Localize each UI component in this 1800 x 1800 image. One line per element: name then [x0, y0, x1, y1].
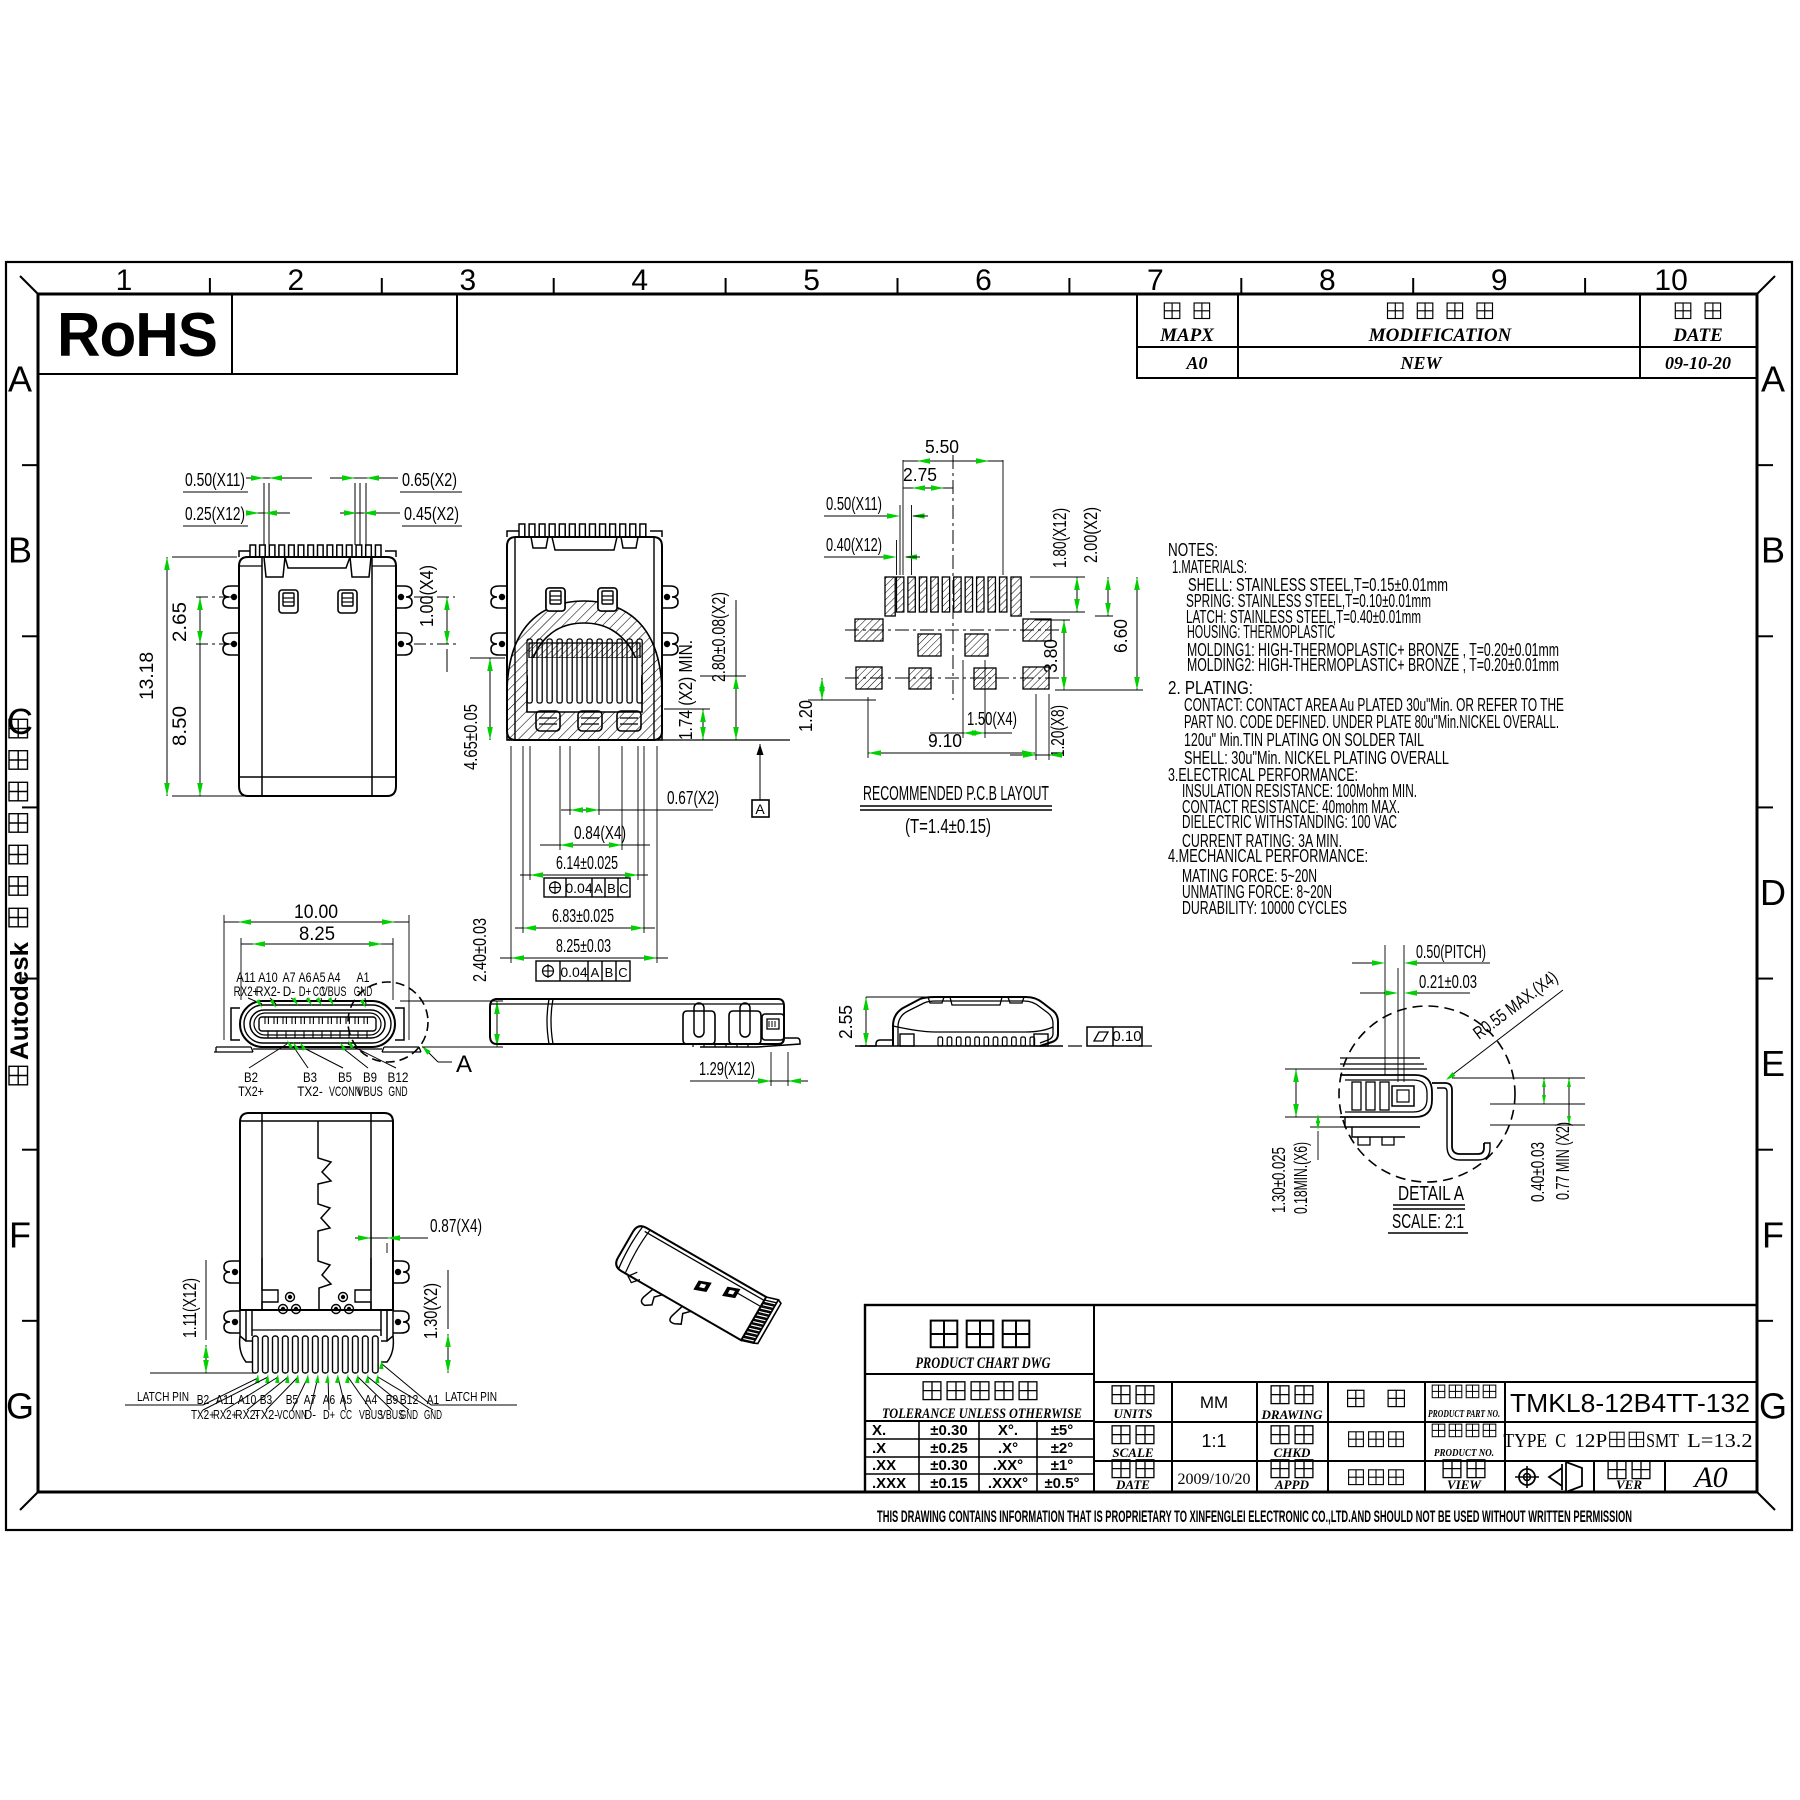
svg-text:DRAWING: DRAWING [1261, 1407, 1324, 1422]
svg-text:A11: A11 [216, 1392, 235, 1407]
svg-text:HOUSING: THERMOPLASTIC: HOUSING: THERMOPLASTIC [1187, 622, 1335, 642]
svg-text:B5: B5 [286, 1392, 298, 1407]
svg-text:1.20(X8): 1.20(X8) [1048, 705, 1068, 757]
svg-text:Autodesk: Autodesk [6, 942, 34, 1060]
svg-text:1.00(X4): 1.00(X4) [417, 565, 437, 627]
svg-text:8: 8 [1319, 264, 1336, 297]
svg-text:6.60: 6.60 [1111, 619, 1131, 653]
svg-text:8.25: 8.25 [299, 924, 335, 945]
svg-text:0.04: 0.04 [560, 964, 587, 980]
svg-text:LATCH PIN: LATCH PIN [137, 1389, 189, 1404]
svg-text:G: G [6, 1385, 34, 1426]
svg-text:2.80±0.08(X2): 2.80±0.08(X2) [709, 592, 729, 682]
svg-text:1.MATERIALS:: 1.MATERIALS: [1172, 557, 1247, 577]
svg-text:4.MECHANICAL PERFORMANCE:: 4.MECHANICAL PERFORMANCE: [1168, 846, 1368, 866]
svg-text:7: 7 [1147, 264, 1164, 297]
svg-text:DIELECTRIC WITHSTANDING: 100: DIELECTRIC WITHSTANDING: 100 VAC [1182, 812, 1397, 832]
svg-text:0.50(PITCH): 0.50(PITCH) [1416, 942, 1486, 962]
svg-text:1.30(X2): 1.30(X2) [421, 1283, 441, 1339]
svg-text:L=13.2: L=13.2 [1687, 1431, 1753, 1452]
svg-text:0.04: 0.04 [565, 880, 592, 896]
svg-text:NEW: NEW [1399, 353, 1443, 373]
svg-text:.X°: .X° [998, 1440, 1018, 1457]
svg-text:±0.25: ±0.25 [930, 1440, 967, 1457]
svg-text:B: B [8, 530, 32, 571]
svg-text:2009/10/20: 2009/10/20 [1178, 1471, 1251, 1488]
svg-text:0.50(X11): 0.50(X11) [826, 494, 882, 514]
svg-text:1.74 (X2) MIN.: 1.74 (X2) MIN. [676, 640, 696, 740]
svg-text:0.65(X2): 0.65(X2) [402, 470, 457, 490]
svg-text:±0.5°: ±0.5° [1044, 1475, 1079, 1492]
svg-text:A: A [8, 359, 32, 400]
svg-text:3.80: 3.80 [1041, 639, 1061, 673]
svg-text:1.20: 1.20 [796, 700, 816, 732]
svg-text:TYPE: TYPE [1503, 1431, 1547, 1452]
svg-text:TX2-: TX2- [254, 1407, 278, 1422]
svg-text:1.50(X4): 1.50(X4) [967, 709, 1017, 729]
svg-text:0.50(X11): 0.50(X11) [185, 470, 245, 490]
svg-text:A0: A0 [1692, 1461, 1727, 1494]
svg-text:2.40±0.03: 2.40±0.03 [470, 918, 490, 982]
svg-text:MOLDING2: HIGH-THERMOPLASTIC+: MOLDING2: HIGH-THERMOPLASTIC+ BRONZE , T… [1187, 655, 1559, 675]
svg-text:GND: GND [424, 1407, 442, 1422]
svg-text:APPD: APPD [1274, 1477, 1310, 1492]
svg-text:TX2+: TX2+ [238, 1083, 264, 1099]
svg-text:VBUS: VBUS [357, 1083, 383, 1099]
svg-text:2.75: 2.75 [903, 465, 937, 485]
svg-text:9: 9 [1491, 264, 1508, 297]
svg-text:PRODUCT CHART DWG: PRODUCT CHART DWG [915, 1355, 1051, 1372]
svg-text:±0.15: ±0.15 [930, 1475, 967, 1492]
svg-text:MM: MM [1200, 1393, 1228, 1412]
svg-text:A7: A7 [304, 1392, 316, 1407]
svg-text:±0.30: ±0.30 [930, 1422, 967, 1439]
svg-text:VCONN: VCONN [329, 1083, 361, 1099]
svg-text:9.10: 9.10 [928, 731, 962, 751]
svg-text:A5: A5 [340, 1392, 352, 1407]
svg-text:SMT: SMT [1646, 1431, 1679, 1452]
svg-text:8.50: 8.50 [170, 706, 191, 746]
svg-text:1.11(X12): 1.11(X12) [180, 1278, 200, 1338]
svg-text:VER: VER [1616, 1477, 1642, 1492]
svg-text:B2: B2 [197, 1392, 209, 1407]
svg-text:10.00: 10.00 [294, 902, 338, 923]
svg-text:1:1: 1:1 [1201, 1431, 1226, 1451]
svg-text:12P: 12P [1574, 1431, 1607, 1452]
svg-text:A: A [594, 881, 603, 896]
svg-text:DATE: DATE [1115, 1477, 1150, 1492]
svg-text:0.67(X2): 0.67(X2) [667, 788, 719, 808]
svg-text:0.84(X4): 0.84(X4) [574, 823, 626, 843]
svg-text:F: F [1762, 1214, 1784, 1255]
svg-text:1: 1 [116, 264, 133, 297]
svg-text:6.83±0.025: 6.83±0.025 [552, 906, 614, 926]
svg-text:±0.30: ±0.30 [930, 1457, 967, 1474]
svg-text:RECOMMENDED P.C.B LAYOUT: RECOMMENDED P.C.B LAYOUT [863, 783, 1049, 805]
svg-text:0.87(X4): 0.87(X4) [430, 1216, 482, 1236]
svg-text:A: A [456, 1051, 472, 1078]
svg-text:A: A [755, 801, 765, 817]
svg-text:B3: B3 [260, 1392, 272, 1407]
svg-text:2.00(X2): 2.00(X2) [1081, 507, 1101, 563]
svg-text:PRODUCT NO.: PRODUCT NO. [1434, 1447, 1494, 1459]
svg-text:GND: GND [400, 1407, 418, 1422]
svg-text:1.30±0.025: 1.30±0.025 [1269, 1147, 1289, 1213]
svg-text:C: C [618, 965, 627, 980]
svg-text:10: 10 [1654, 264, 1687, 297]
svg-text:TX2-: TX2- [297, 1083, 323, 1099]
svg-text:1.80(X12): 1.80(X12) [1050, 508, 1070, 568]
svg-text:D-: D- [283, 983, 296, 999]
svg-text:X.: X. [872, 1422, 886, 1439]
svg-text:±2°: ±2° [1051, 1440, 1074, 1457]
svg-text:UNITS: UNITS [1113, 1406, 1152, 1421]
svg-text:F: F [9, 1214, 31, 1255]
svg-text:13.18: 13.18 [137, 652, 158, 700]
svg-text:1.29(X12): 1.29(X12) [699, 1059, 755, 1079]
svg-text:X°.: X°. [998, 1422, 1018, 1439]
svg-text:8.25±0.03: 8.25±0.03 [556, 936, 611, 956]
svg-text:TX2+: TX2+ [191, 1407, 215, 1422]
svg-text:0.45(X2): 0.45(X2) [404, 504, 459, 524]
svg-text:THIS DRAWING CONTAINS INFOR: THIS DRAWING CONTAINS INFORMATION THAT I… [877, 1507, 1632, 1526]
svg-text:0.25(X12): 0.25(X12) [185, 504, 245, 524]
svg-text:2: 2 [288, 264, 305, 297]
svg-text:5.50: 5.50 [925, 437, 959, 457]
svg-text:.XX: .XX [872, 1457, 896, 1474]
svg-text:DURABILITY: 10000 CYCLES: DURABILITY: 10000 CYCLES [1182, 898, 1347, 918]
svg-text:GND: GND [388, 1083, 407, 1099]
svg-text:E: E [1761, 1043, 1785, 1084]
svg-text:VIEW: VIEW [1447, 1477, 1482, 1492]
svg-text:3: 3 [459, 264, 476, 297]
svg-text:6: 6 [975, 264, 992, 297]
svg-text:A: A [1761, 359, 1785, 400]
svg-text:5: 5 [803, 264, 820, 297]
svg-text:PRODUCT PART NO.: PRODUCT PART NO. [1428, 1408, 1500, 1420]
svg-text:2.55: 2.55 [836, 1005, 856, 1039]
svg-text:2.65: 2.65 [170, 602, 191, 642]
svg-text:±1°: ±1° [1051, 1457, 1074, 1474]
svg-text:B: B [1761, 530, 1785, 571]
svg-text:PART NO. CODE DEFINED. UND: PART NO. CODE DEFINED. UNDER PLATE 80u"M… [1184, 712, 1559, 732]
svg-text:4: 4 [631, 264, 648, 297]
svg-text:C: C [1555, 1431, 1566, 1452]
svg-text:B: B [605, 965, 614, 980]
svg-text:MODIFICATION: MODIFICATION [1368, 325, 1513, 346]
svg-text:C: C [7, 701, 33, 742]
svg-text:09-10-20: 09-10-20 [1665, 353, 1731, 373]
svg-text:A: A [591, 965, 600, 980]
svg-text:G: G [1759, 1385, 1787, 1426]
svg-text:C: C [619, 881, 628, 896]
svg-text:B: B [607, 881, 616, 896]
svg-text:0.40(X12): 0.40(X12) [826, 535, 882, 555]
svg-text:A0: A0 [1185, 353, 1207, 373]
svg-text:0.40±0.03: 0.40±0.03 [1528, 1142, 1548, 1202]
svg-text:SCALE: SCALE [1112, 1445, 1154, 1460]
svg-text:120u" Min.TIN PLATING ON S: 120u" Min.TIN PLATING ON SOLDER TAIL [1184, 730, 1424, 750]
svg-text:.XXX°: .XXX° [988, 1475, 1028, 1492]
svg-text:DETAIL A: DETAIL A [1398, 1183, 1465, 1205]
svg-text:.XX°: .XX° [993, 1457, 1023, 1474]
svg-text:MAPX: MAPX [1159, 325, 1215, 346]
svg-text:±5°: ±5° [1051, 1422, 1074, 1439]
svg-text:CHKD: CHKD [1274, 1445, 1311, 1460]
svg-text:0.18MIN.(X6): 0.18MIN.(X6) [1291, 1142, 1311, 1214]
svg-text:DATE: DATE [1672, 325, 1723, 346]
svg-text:SCALE: 2:1: SCALE: 2:1 [1392, 1211, 1464, 1233]
svg-text:TMKL8-12B4TT-132: TMKL8-12B4TT-132 [1510, 1388, 1750, 1418]
svg-text:.XXX: .XXX [872, 1475, 906, 1492]
svg-text:D: D [1760, 872, 1786, 913]
svg-text:VBUS: VBUS [322, 983, 347, 999]
svg-text:4.65±0.05: 4.65±0.05 [461, 704, 481, 770]
svg-text:(T=1.4±0.15): (T=1.4±0.15) [905, 816, 991, 838]
svg-text:6.14±0.025: 6.14±0.025 [556, 853, 618, 873]
svg-text:0.10: 0.10 [1112, 1028, 1141, 1045]
svg-text:D+: D+ [299, 983, 311, 999]
svg-text:.X: .X [872, 1440, 886, 1457]
svg-text:0.77 MIN (X2): 0.77 MIN (X2) [1553, 1122, 1573, 1200]
svg-text:TOLERANCE UNLESS OTHERWISE: TOLERANCE UNLESS OTHERWISE [882, 1406, 1082, 1422]
svg-text:RoHS: RoHS [57, 301, 217, 370]
svg-text:RX2-: RX2- [256, 983, 281, 999]
svg-text:RX2+: RX2+ [213, 1407, 237, 1422]
svg-text:0.21±0.03: 0.21±0.03 [1419, 972, 1477, 992]
svg-text:LATCH PIN: LATCH PIN [445, 1389, 497, 1404]
